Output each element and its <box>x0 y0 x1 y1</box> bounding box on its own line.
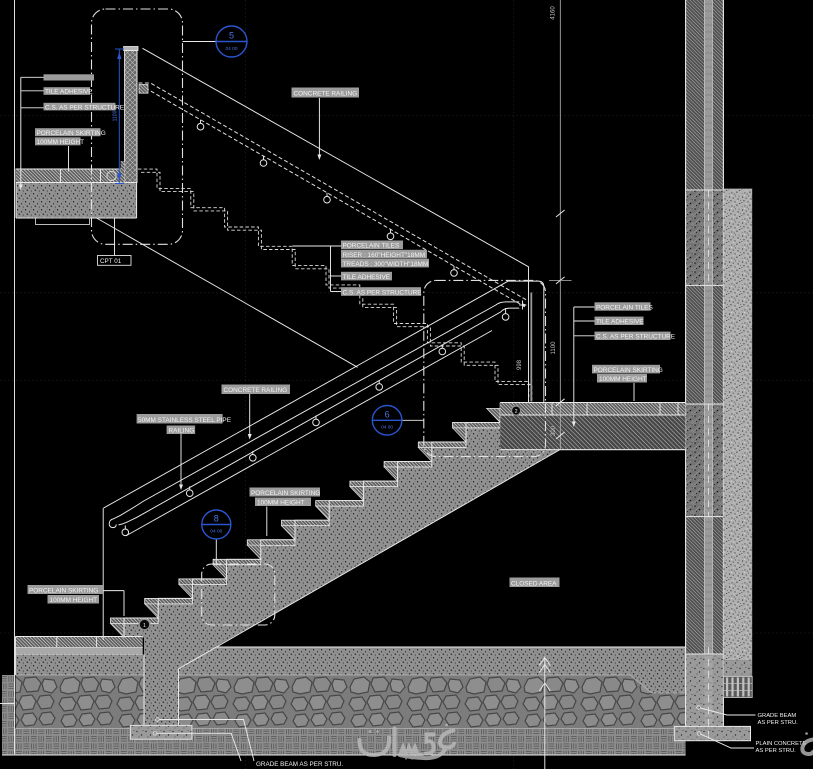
svg-text:04 00: 04 00 <box>225 46 237 52</box>
svg-text:2: 2 <box>515 409 518 415</box>
svg-text:1: 1 <box>143 623 146 629</box>
svg-text:PORCELAIN SKIRTING: PORCELAIN SKIRTING <box>29 588 98 595</box>
svg-text:C.S. AS PER STRUCTURE: C.S. AS PER STRUCTURE <box>596 334 676 341</box>
svg-text:PLAIN CONCRETE: PLAIN CONCRETE <box>756 741 807 747</box>
svg-text:AS PER STRU.: AS PER STRU. <box>756 748 797 754</box>
svg-text:PORCELAIN TILES: PORCELAIN TILES <box>596 304 653 311</box>
svg-text:CPT 01: CPT 01 <box>100 258 122 265</box>
svg-text:GRADE BEAM: GRADE BEAM <box>758 713 797 719</box>
svg-text:5: 5 <box>229 31 234 41</box>
svg-text:1100: 1100 <box>112 110 118 121</box>
svg-text:PORCELAIN TILES: PORCELAIN TILES <box>343 243 400 250</box>
svg-text:TILE ADHESIVE: TILE ADHESIVE <box>596 319 644 326</box>
svg-text:CONCRETE RAILING: CONCRETE RAILING <box>294 90 358 97</box>
svg-text:RISER : 160"HEIGHT"18MM: RISER : 160"HEIGHT"18MM <box>343 252 426 259</box>
svg-text:4160: 4160 <box>551 6 557 20</box>
svg-text:TILE ADHESIVE: TILE ADHESIVE <box>343 274 391 281</box>
svg-text:04 00: 04 00 <box>210 529 222 535</box>
svg-text:50MM STAINLESS STEEL PIPE: 50MM STAINLESS STEEL PIPE <box>138 417 232 424</box>
svg-text:100MM HEIGHT: 100MM HEIGHT <box>50 597 98 604</box>
svg-text:100MM HEIGHT: 100MM HEIGHT <box>257 500 305 507</box>
svg-text:CONCRETE RAILING: CONCRETE RAILING <box>224 387 288 394</box>
svg-text:AS PER STRU.: AS PER STRU. <box>758 720 799 726</box>
svg-text:8: 8 <box>214 514 219 524</box>
svg-text:998: 998 <box>517 359 523 370</box>
svg-text:RAILING: RAILING <box>169 428 195 435</box>
svg-text:PORCELAIN SKIRTING: PORCELAIN SKIRTING <box>594 367 663 374</box>
svg-text:GRADE BEAM AS PER STRU.: GRADE BEAM AS PER STRU. <box>256 761 343 768</box>
svg-text:100MM HEIGHT: 100MM HEIGHT <box>37 139 85 146</box>
svg-text:TILE ADHESIVE: TILE ADHESIVE <box>45 89 93 96</box>
svg-text:300: 300 <box>551 425 557 436</box>
svg-text:6: 6 <box>385 410 390 420</box>
svg-text:1100: 1100 <box>551 341 557 355</box>
svg-text:C.S. AS PER STRUCTURE: C.S. AS PER STRUCTURE <box>45 104 125 111</box>
svg-text:CLOSED AREA: CLOSED AREA <box>511 580 557 587</box>
svg-text:100MM HEIGHT: 100MM HEIGHT <box>599 376 647 383</box>
svg-text:PORCELAIN SKIRTING: PORCELAIN SKIRTING <box>251 490 320 497</box>
svg-text:PORCELAIN SKIRTING: PORCELAIN SKIRTING <box>37 130 106 137</box>
svg-text:C.S. AS PER STRUCTURE: C.S. AS PER STRUCTURE <box>343 289 423 296</box>
svg-text:TREADS : 300"WIDTH"18MM: TREADS : 300"WIDTH"18MM <box>343 261 429 268</box>
svg-text:04 00: 04 00 <box>381 425 393 431</box>
